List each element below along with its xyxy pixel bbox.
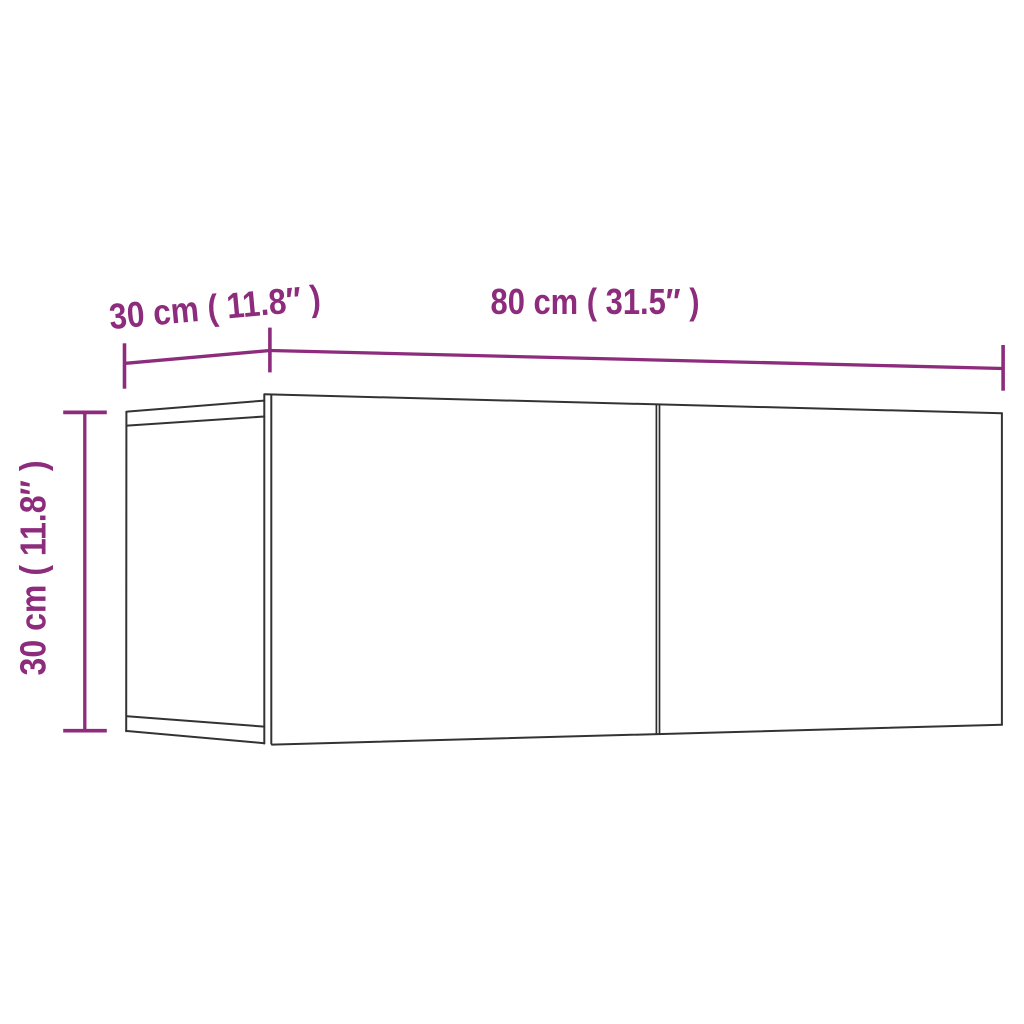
svg-text:30 cm ( 11.8″ ): 30 cm ( 11.8″ ) [12,461,53,676]
svg-text:80 cm ( 31.5″ ): 80 cm ( 31.5″ ) [491,281,700,322]
